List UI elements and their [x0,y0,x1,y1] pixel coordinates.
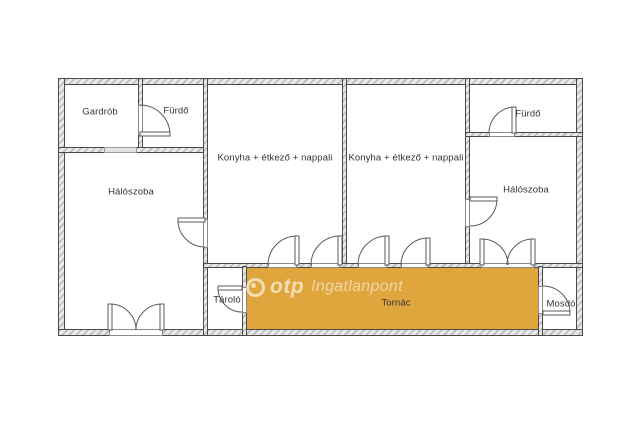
french-door-arc [110,304,136,330]
door-leaf [470,197,497,201]
door-arc [358,236,387,265]
room-label-konyha-1: Konyha + étkező + nappali [217,153,332,164]
room-label-tarolo: Tároló [213,295,241,306]
door-leaf [140,132,170,136]
door-symbols [0,0,640,428]
door-leaf [218,286,242,290]
door-arc [178,220,205,247]
french-door-arc [507,239,533,265]
french-door-leaf [160,304,164,330]
door-arc [268,236,297,265]
room-label-konyha-2: Konyha + étkező + nappali [348,153,463,164]
room-label-gardrob: Gardrób [82,107,118,118]
french-door-arc [482,239,508,265]
floor-plan: otp Ingatlanpont Gardrób Fürdő Hálószoba… [0,0,640,428]
door-arc [489,107,515,133]
room-label-haloszoba-right: Hálószoba [503,185,549,196]
door-arc [311,236,340,265]
french-door-leaf [108,304,112,330]
room-label-tornac: Tornác [381,298,410,309]
door-leaf [385,236,389,265]
door-leaf [178,218,205,222]
room-label-haloszoba-left: Hálószoba [108,187,154,198]
room-label-furdo-left: Fürdő [163,106,188,117]
door-leaf [338,236,342,265]
door-arc [470,199,497,226]
door-leaf [543,311,570,315]
door-leaf [295,236,299,265]
french-door-arc [136,304,162,330]
room-label-furdo-right: Fürdő [515,109,540,120]
room-label-mosdo: Mosdó [546,299,575,310]
door-arc [401,238,428,265]
french-door-leaf [531,239,535,265]
french-door-leaf [480,239,484,265]
door-leaf [426,238,430,265]
